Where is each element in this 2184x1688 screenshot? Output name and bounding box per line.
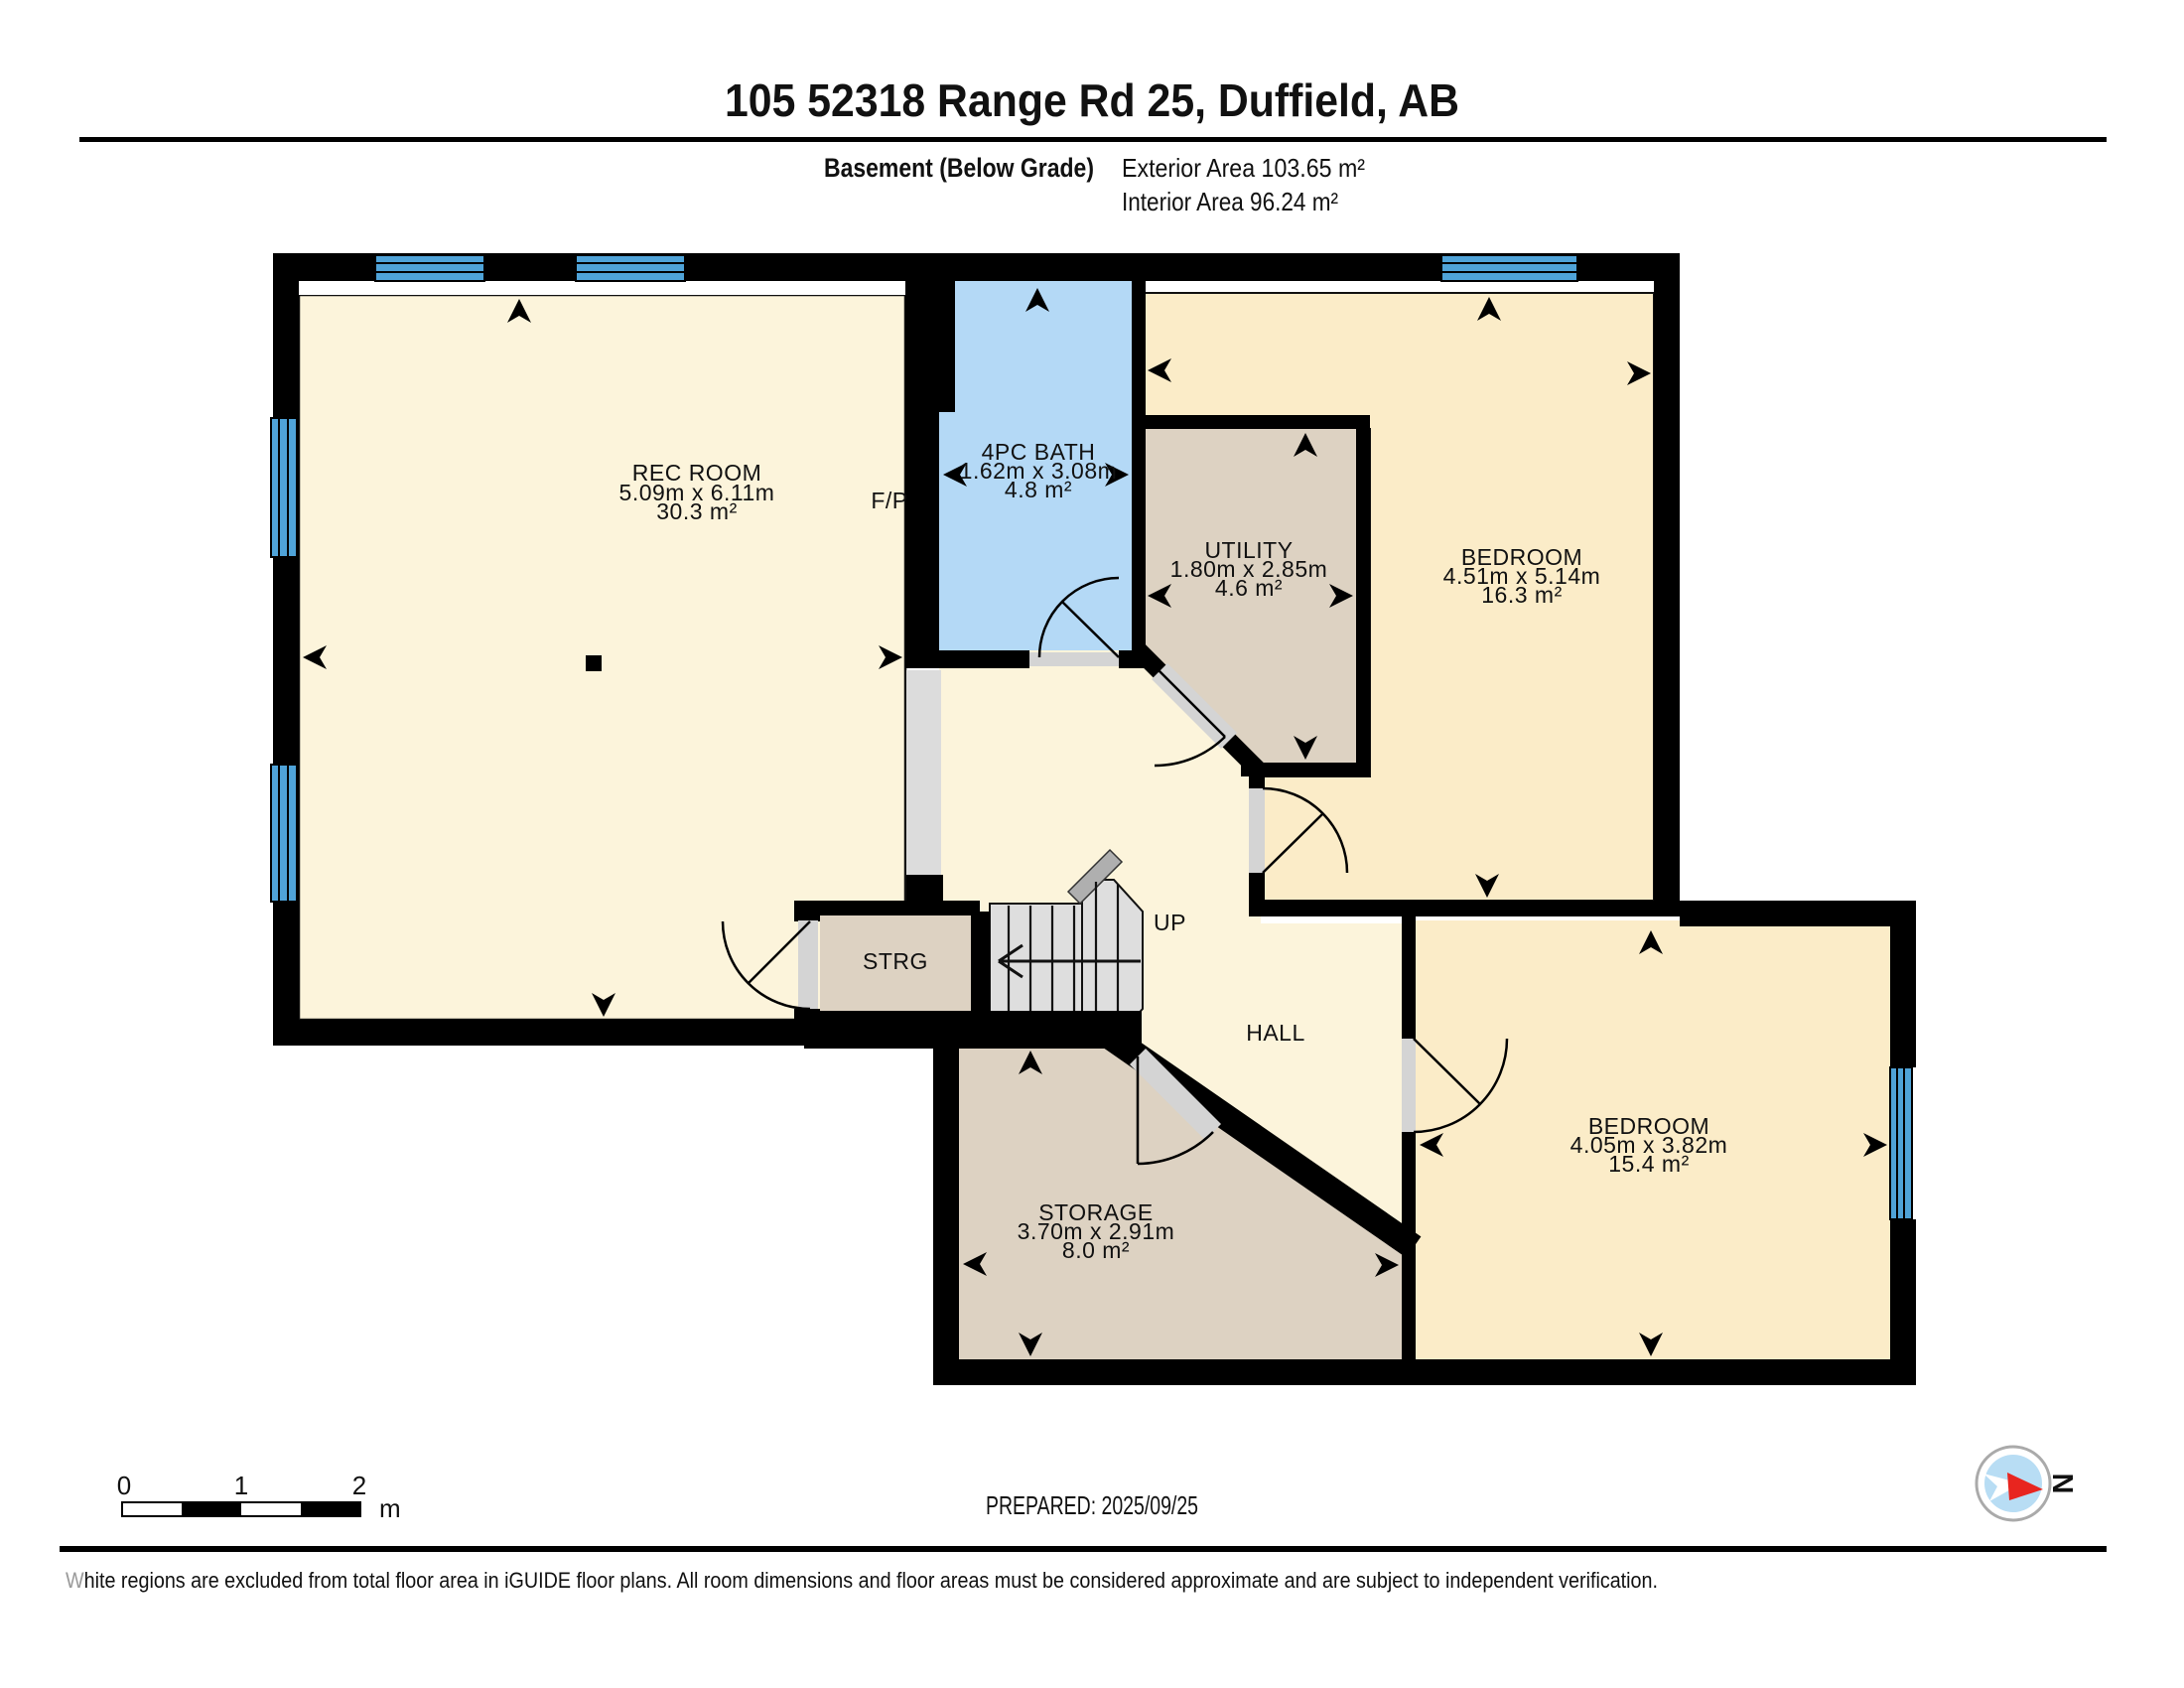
bedroom1-door: [1249, 788, 1265, 873]
bath-door: [1029, 652, 1119, 666]
window-recroom-top-2: [576, 255, 685, 281]
window-bedroom2-right: [1890, 1067, 1912, 1219]
prepared-date: PREPARED: 2025/09/25: [986, 1490, 1198, 1520]
hall-label: HALL: [1246, 1020, 1305, 1046]
excluded-strip-recroom: [297, 281, 928, 295]
bedroom1-area: 16.3 m²: [1481, 582, 1562, 608]
exterior-area: Exterior Area 103.65 m²: [1122, 153, 1365, 183]
scale-tick-1: 1: [234, 1471, 248, 1500]
floor-label: Basement (Below Grade): [824, 153, 1094, 183]
disclaimer-text: White regions are excluded from total fl…: [66, 1568, 1658, 1593]
strg-door: [798, 920, 818, 1009]
stairs-up-label: UP: [1154, 910, 1186, 935]
window-bedroom1-top: [1441, 255, 1577, 281]
scale-unit: m: [379, 1493, 401, 1523]
strg-label: STRG: [863, 948, 928, 974]
window-recroom-top-1: [375, 255, 484, 281]
window-recroom-left-2: [271, 765, 297, 902]
storage-area: 8.0 m²: [1062, 1237, 1130, 1263]
scale-bar: 0 1 2 m: [117, 1471, 401, 1523]
bath-area: 4.8 m²: [1005, 477, 1072, 502]
excluded-strip-bedroom1: [1144, 281, 1654, 293]
compass-north-label: N: [2046, 1474, 2078, 1494]
passage-recroom-hall: [906, 670, 941, 875]
scale-tick-2: 2: [352, 1471, 366, 1500]
window-recroom-left-1: [271, 418, 297, 557]
utility-area: 4.6 m²: [1215, 575, 1283, 601]
floorplan-page: 105 52318 Range Rd 25, Duffield, AB Base…: [0, 0, 2184, 1688]
footer-divider: [60, 1546, 2107, 1552]
interior-area: Interior Area 96.24 m²: [1122, 187, 1338, 216]
fireplace-label: F/P: [871, 488, 907, 513]
compass: N: [1977, 1447, 2078, 1520]
scale-tick-0: 0: [117, 1471, 131, 1500]
recroom-area: 30.3 m²: [656, 498, 737, 524]
page-title: 105 52318 Range Rd 25, Duffield, AB: [725, 74, 1459, 126]
bedroom2-area: 15.4 m²: [1608, 1151, 1689, 1177]
floorplan-svg: 105 52318 Range Rd 25, Duffield, AB Base…: [0, 0, 2184, 1688]
recroom-center-post: [586, 655, 602, 671]
title-divider: [79, 137, 2107, 142]
bedroom2-door: [1402, 1039, 1416, 1132]
